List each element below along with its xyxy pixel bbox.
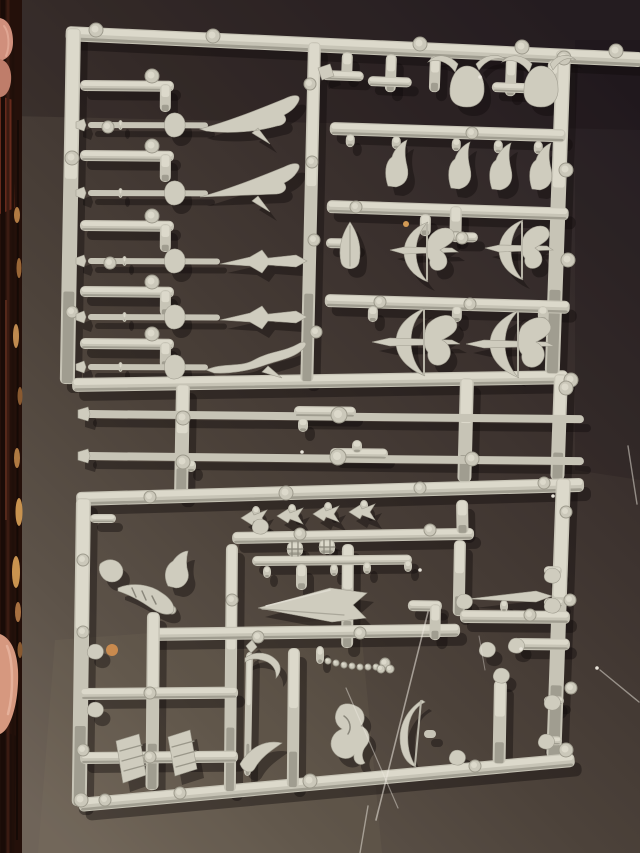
pin-highlight [312,328,318,334]
pin-highlight [104,123,110,129]
fist [252,519,268,534]
pin-highlight [378,666,382,670]
edge-scuff [14,448,20,468]
runner-highlight [92,515,115,519]
fist [544,695,560,710]
sprue-runner [88,314,220,320]
sprue-runner [88,364,208,370]
pin-highlight [282,489,289,496]
runner-shade [354,450,360,452]
sprue-runner [368,306,378,322]
pin-highlight [387,666,391,670]
runner-highlight [161,155,169,167]
runner-highlight [289,649,299,708]
pin-highlight [68,308,74,314]
speck [595,666,599,670]
runner-shade [162,175,169,181]
pin-highlight [416,484,422,490]
sprue-runner [316,646,324,664]
runner-shadow [125,197,130,207]
runner-shade [365,571,369,573]
runner-face [88,314,220,320]
fist [508,638,524,653]
sprue-runner [352,440,362,453]
pin-highlight [540,479,546,485]
pin-highlight [77,796,84,803]
runner-shadow [270,575,278,587]
runner-highlight [289,543,302,549]
runner-shade [321,550,333,553]
pin-highlight [342,663,345,666]
pin-highlight [146,753,152,759]
runner-shade [495,742,504,763]
runner-shade [120,369,121,371]
gripping-hand [164,305,185,329]
sprue-runner [330,564,338,576]
runner-shade [147,744,156,789]
edge-scuff [15,602,21,622]
runner-face [88,190,208,196]
runner-shade [124,263,125,265]
board-shading [575,40,640,480]
edge-scuff [14,207,20,223]
pin-highlight [562,746,569,753]
pin-highlight [562,166,569,173]
runner-shade [162,105,169,111]
pin-highlight [148,212,155,219]
pin-highlight [308,158,314,164]
runner-highlight [362,501,367,506]
runner-shadow [95,267,227,273]
sprue-runner [122,312,127,322]
runner-highlight [120,363,122,367]
sprue-runner [118,188,123,198]
runner-shade [406,569,410,571]
runner-highlight [453,139,459,145]
speck [300,450,304,454]
runner-shade [502,609,506,611]
pin-highlight [333,452,341,460]
runner-highlight [318,647,323,655]
pin-highlight [334,661,337,664]
pin-highlight [179,458,186,465]
gripping-hand [164,113,185,137]
pin-highlight [148,330,155,337]
sprue-runner [88,190,208,196]
runner-highlight [177,385,189,433]
pin-highlight [68,154,75,161]
pin-highlight [334,410,342,418]
runner-shade [289,552,301,555]
runner-highlight [254,507,259,512]
pin-highlight [612,47,619,54]
runner-shade [120,195,121,197]
runner-shadow [95,199,215,205]
runner-highlight [161,343,169,354]
runner-shade [298,583,305,589]
runner-highlight [332,565,337,570]
runner-highlight [354,441,361,446]
edge-scuff [16,498,23,526]
runner-highlight [539,307,546,313]
pin-highlight [376,298,382,304]
sprue-runner [90,514,116,523]
pin-highlight [567,684,573,690]
runner-shadow [411,569,419,581]
runner-highlight [495,141,501,147]
speck [551,494,555,498]
runner-highlight [265,567,270,572]
runner-highlight [451,207,460,221]
sprue-runner [118,362,123,372]
sprue-runner [298,418,308,432]
sprue-runner [80,220,174,232]
fist [544,598,560,613]
runner-highlight [161,85,169,97]
pin-highlight [352,203,358,209]
pin-highlight [146,689,152,695]
runner-highlight [455,541,465,573]
pin-highlight [468,129,474,135]
sprue-runner [80,751,238,764]
speck [519,647,523,651]
runner-shade [120,127,121,129]
pin-highlight [254,633,260,639]
runner-highlight [347,135,353,141]
sprue-runner [80,687,238,700]
runner-shade [289,752,297,787]
fist [493,668,509,683]
sprue-runner [122,256,127,266]
sprue-runner [500,600,508,612]
sprue-runner [287,648,300,788]
edge-scuff [13,324,19,348]
runner-highlight [148,613,159,688]
pin-highlight [518,43,525,50]
pin-highlight [148,278,155,285]
runner-shadow [97,523,123,532]
pin-highlight [466,300,472,306]
runner-highlight [81,221,172,226]
fist [544,568,560,583]
sprue-runner [368,76,412,88]
runner-highlight [124,313,126,317]
runner-shadow [95,323,227,329]
pin-highlight [566,596,572,602]
sprue-photo [0,0,640,853]
speck [403,221,409,227]
pin-highlight [209,32,216,39]
runner-highlight [81,287,172,292]
sprue-runner [80,338,174,350]
runner-highlight [393,137,399,143]
gripping-hand [164,249,185,273]
pin-highlight [526,611,532,617]
runner-highlight [507,59,516,75]
runner-highlight [120,189,122,193]
sprue-runner [363,562,371,574]
pin-highlight [356,629,362,635]
sprue-runner [452,138,461,151]
pin-highlight [296,530,302,536]
pin-highlight [471,762,477,768]
edge-scuff [18,642,23,658]
fist [449,750,465,765]
pin-highlight [306,777,313,784]
pin-highlight [310,236,316,242]
pin-highlight [106,259,112,265]
fist [87,702,103,717]
runner-highlight [365,563,370,568]
speck [418,568,422,572]
pin-highlight [358,665,361,668]
sprue-runner [80,80,174,92]
runner-shadow [431,739,443,747]
pin-highlight [426,526,432,532]
runner-shadow [95,131,215,137]
sprue-runner [346,134,355,147]
sprue-runner [160,224,171,252]
sprue-runner [429,604,441,640]
pin-highlight [306,80,312,86]
runner-shade [124,319,125,321]
fist [538,734,554,749]
runner-shade [62,291,75,383]
runner-highlight [453,307,460,314]
runner-highlight [124,257,126,261]
runner-highlight [161,225,169,237]
runner-face [424,730,436,738]
runner-shadow [125,129,130,139]
sprue-runner [429,56,441,92]
runner-shade [265,575,269,577]
runner-shadow [370,571,378,583]
runner-highlight [369,307,376,314]
pin-highlight [366,665,369,668]
pin-highlight [468,455,475,462]
pin-highlight [148,72,155,79]
sprue-runner [457,378,474,482]
runner-shade [431,83,438,92]
runner-shade [300,428,306,431]
runner-highlight [81,339,172,344]
sprue-runner [404,560,412,572]
runner-shade [92,521,114,522]
runner-shade [332,573,336,575]
runner-face [88,364,208,370]
pin-highlight [416,40,423,47]
runner-shade [318,659,322,663]
runner-highlight [321,541,334,547]
pin-highlight [374,665,377,668]
pin-highlight [101,796,107,802]
sprue-runner [493,680,507,764]
pin-highlight [79,556,85,562]
sprue-runner [160,154,171,182]
sprue-runner [174,384,190,498]
sprue-runner [118,120,123,130]
runner-highlight [502,601,507,606]
runner-highlight [343,545,352,589]
runner-shade [162,245,169,251]
runner-highlight [458,501,467,515]
pin-highlight [148,142,155,149]
pin-highlight [562,508,568,514]
sprue-runner [252,555,412,566]
runner-highlight [300,419,307,425]
pin-highlight [350,664,353,667]
edge-scuff [17,258,22,278]
runner-shadow [129,265,134,275]
runner-highlight [290,505,295,510]
runner-highlight [161,291,169,302]
runner-highlight [387,55,396,71]
speck [478,75,482,79]
sprue-photo-canvas [0,0,640,853]
runner-highlight [81,81,172,86]
runner-shade [188,469,194,471]
fist [87,644,103,659]
runner-highlight [343,53,351,64]
pin-highlight [228,596,234,602]
runner-shade [458,525,466,533]
pin-highlight [92,26,99,33]
sprue-runner [424,730,436,738]
pin-highlight [562,384,569,391]
fist [456,594,472,609]
runner-highlight [495,681,506,716]
gripping-hand [164,181,185,205]
pin-highlight [382,660,387,665]
sprue-runner [296,564,307,590]
runner-highlight [535,142,541,148]
runner-highlight [298,565,306,576]
pin-highlight [79,746,85,752]
runner-shade [552,452,563,479]
runner-shadow [129,321,134,331]
edge-scuff [18,387,23,405]
runner-shade [370,318,376,321]
runner-shadow [193,469,203,481]
pin-highlight [79,628,85,634]
sprue-runner [263,566,271,578]
pin-highlight [179,414,186,421]
runner-highlight [81,151,172,156]
runner-highlight [431,605,439,620]
speck [106,644,118,656]
runner-highlight [120,121,122,125]
sprue-runner [80,286,174,298]
pin-highlight [176,789,182,795]
pin-highlight [146,493,152,499]
runner-highlight [406,561,411,566]
pin-highlight [458,234,464,240]
runner-highlight [326,503,331,508]
pin-highlight [564,256,571,263]
runner-shade [431,631,438,639]
sprue-runner [456,500,469,534]
wood-grain [17,120,18,840]
sprue-runner [160,84,171,112]
gripping-hand [164,355,185,379]
edge-scuff [12,556,20,588]
pin-highlight [326,659,329,662]
sprue-runner [80,150,174,162]
